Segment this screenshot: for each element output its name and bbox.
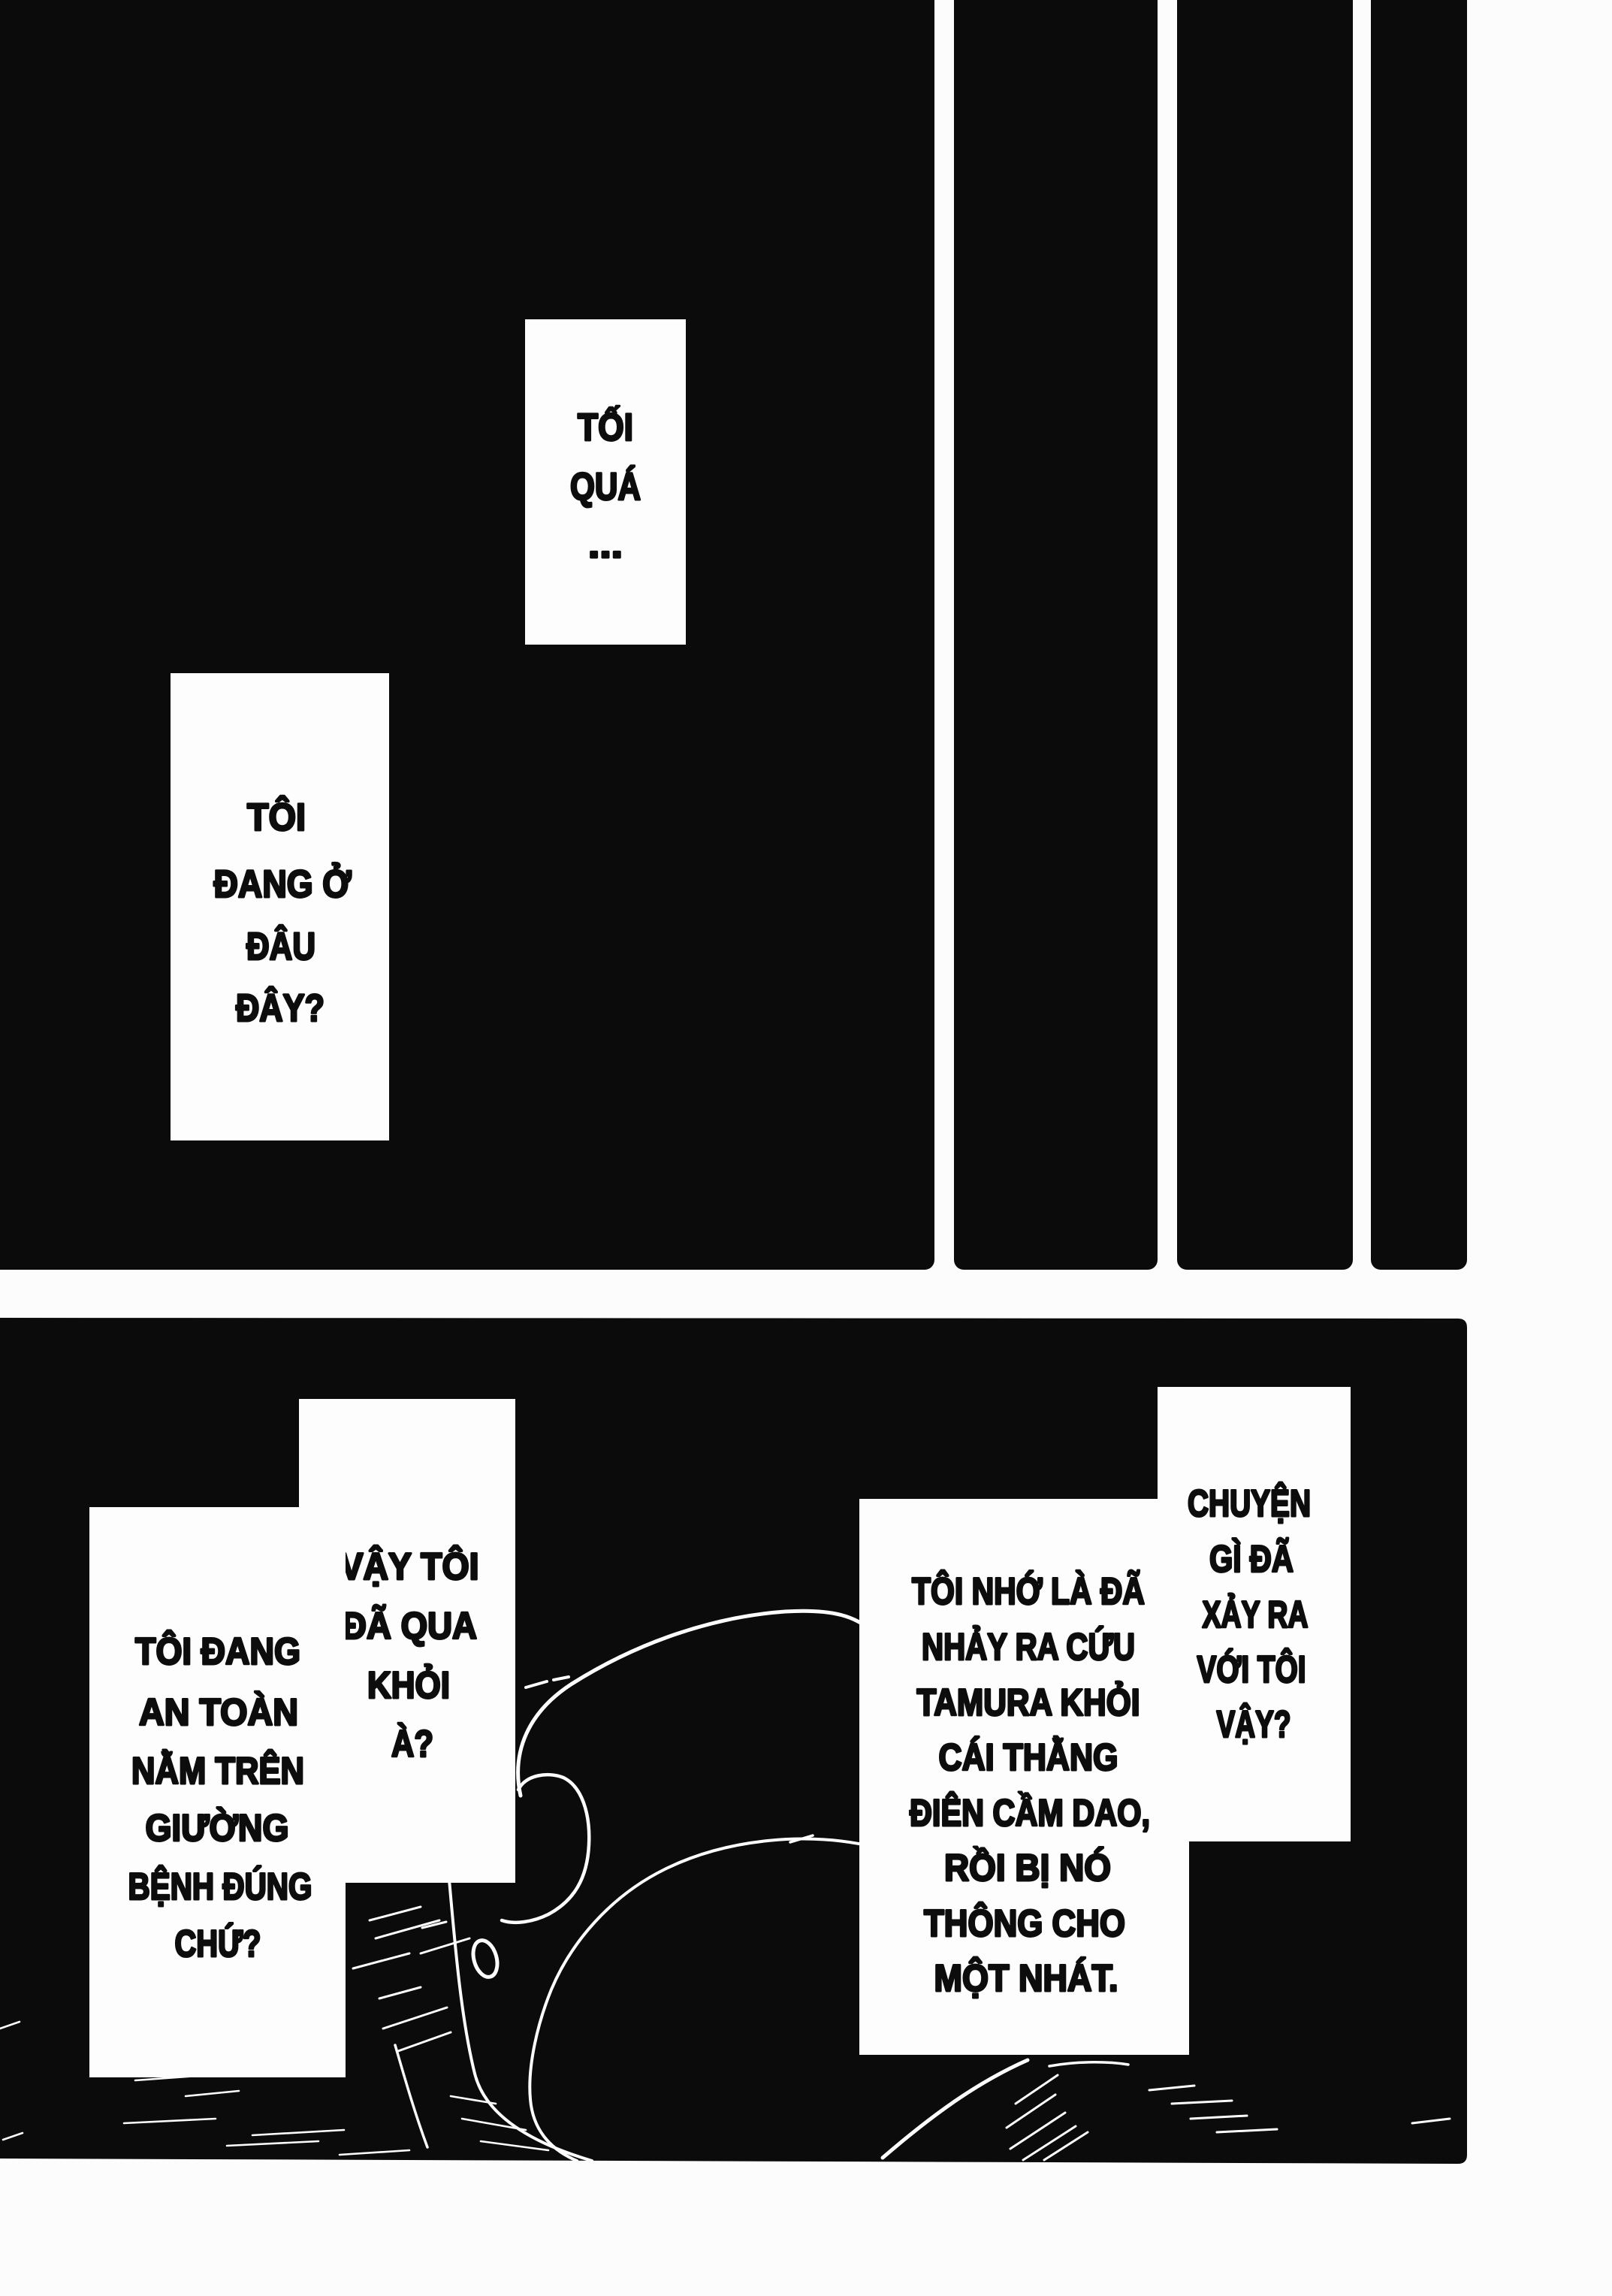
svg-text:CHỨ?: CHỨ? bbox=[175, 1923, 261, 1965]
svg-text:BỆNH ĐÚNG: BỆNH ĐÚNG bbox=[128, 1865, 312, 1908]
svg-text:TAMURA KHỎI: TAMURA KHỎI bbox=[917, 1681, 1140, 1724]
svg-text:KHỎI: KHỎI bbox=[367, 1663, 450, 1706]
svg-text:CÁI THẰNG: CÁI THẰNG bbox=[939, 1736, 1118, 1778]
svg-text:ĐÃ QUA: ĐÃ QUA bbox=[342, 1605, 477, 1647]
svg-text:NHẢY RA CỨU: NHẢY RA CỨU bbox=[922, 1626, 1135, 1668]
svg-text:AN TOÀN: AN TOÀN bbox=[139, 1691, 298, 1733]
svg-text:ĐANG Ở: ĐANG Ở bbox=[214, 862, 352, 905]
svg-text:NẰM TRÊN: NẰM TRÊN bbox=[131, 1750, 304, 1792]
svg-text:VẬY TÔI: VẬY TÔI bbox=[340, 1545, 479, 1588]
svg-text:RỒI BỊ NÓ: RỒI BỊ NÓ bbox=[944, 1847, 1111, 1889]
svg-text:ĐÂY?: ĐÂY? bbox=[236, 986, 325, 1029]
svg-text:ĐIÊN CẦM DAO,: ĐIÊN CẦM DAO, bbox=[910, 1792, 1150, 1834]
svg-text:VỚI TÔI: VỚI TÔI bbox=[1197, 1648, 1306, 1690]
svg-text:...: ... bbox=[588, 523, 623, 566]
svg-text:ĐÂU: ĐÂU bbox=[246, 924, 315, 968]
svg-text:VẬY?: VẬY? bbox=[1217, 1703, 1291, 1745]
svg-text:TÔI: TÔI bbox=[247, 795, 306, 838]
svg-text:CHUYỆN: CHUYỆN bbox=[1188, 1482, 1311, 1524]
svg-text:GIƯỜNG: GIƯỜNG bbox=[146, 1807, 289, 1849]
svg-text:XẢY RA: XẢY RA bbox=[1203, 1594, 1309, 1636]
svg-text:TỐI: TỐI bbox=[578, 405, 633, 449]
svg-text:À?: À? bbox=[391, 1723, 433, 1765]
svg-text:QUÁ: QUÁ bbox=[570, 465, 641, 508]
svg-text:THÔNG CHO: THÔNG CHO bbox=[924, 1902, 1125, 1944]
svg-text:TÔI ĐANG: TÔI ĐANG bbox=[135, 1630, 300, 1672]
svg-text:MỘT NHÁT.: MỘT NHÁT. bbox=[934, 1956, 1118, 1999]
svg-text:GÌ ĐÃ: GÌ ĐÃ bbox=[1209, 1538, 1294, 1580]
svg-text:TÔI NHỚ LÀ ĐÃ: TÔI NHỚ LÀ ĐÃ bbox=[912, 1569, 1145, 1612]
